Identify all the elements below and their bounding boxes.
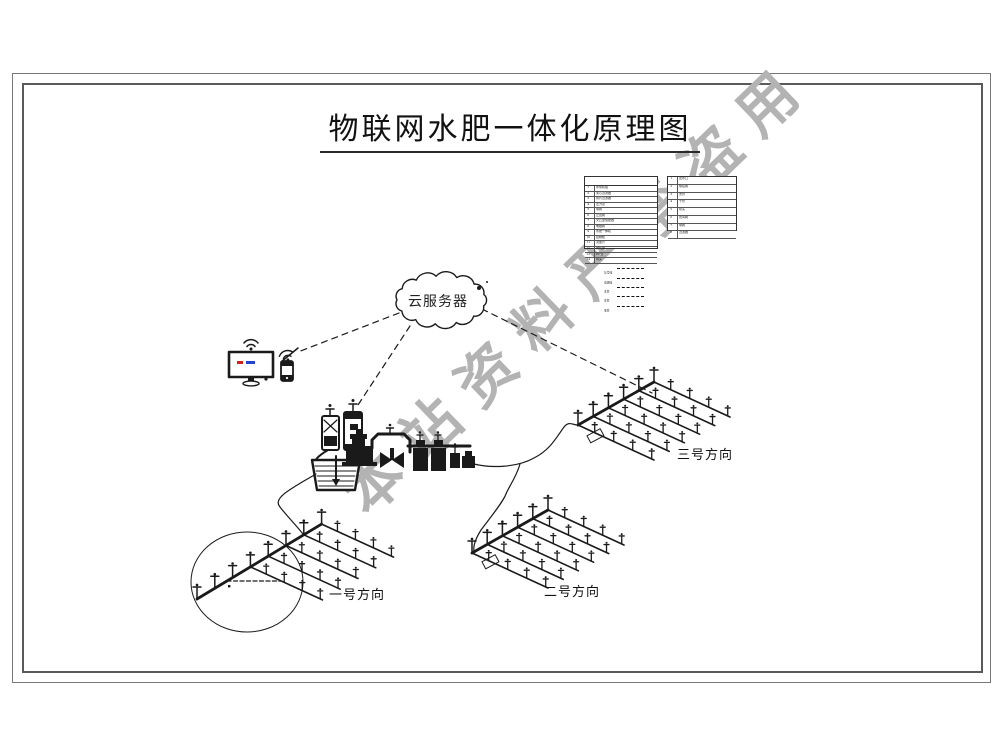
screen-red-dash [237,361,243,364]
wireless-link-lines [298,309,652,408]
field1-label: 一号方向 [329,584,385,603]
wifi-icon [244,340,258,351]
legend-row: 1出水口 [668,177,736,185]
legend-row: 2快接阀 [668,185,736,193]
title-underline [320,151,700,153]
legend-row: 8过滤器 [668,231,736,239]
field2-label: 二号方向 [544,581,600,600]
line-type-sample [617,268,644,269]
smartphone-icon [278,348,298,381]
monitor-icon [229,340,273,386]
link-cloud-to-devices [298,313,399,352]
line-type-row: 毛管 [604,302,644,311]
link-cloud-to-controller [356,326,410,408]
drawing-sheet: 物联网水肥一体化原理图 本站资料严禁盗用 [0,0,1000,750]
legend-row: 3支管 [668,193,736,201]
legend-header: 图例 [585,177,657,186]
fertigation-station [312,399,475,490]
field-tags [482,429,604,569]
legend-row: 7球阀 [668,224,736,232]
pipeline-to-field3 [474,424,580,467]
legend-table-side: 1出水口2快接阀3支管4干管5喷头6田间阀7球阀8过滤器 [667,176,737,231]
legend-row: 5喷头 [668,208,736,216]
drawing-title: 物联网水肥一体化原理图 [260,104,760,148]
legend-row: 6田间阀 [668,216,736,224]
line-type-sample [617,306,644,307]
screen-blue-dash [246,361,255,364]
legend-table-main: 图例 1水泵机组2离心过滤器3叠片过滤器4压力表5球阀6止回阀7文丘里施肥器8电… [584,176,658,249]
sprinkler-fields [193,367,730,600]
valve-icon [380,448,404,468]
line-type-sample [617,278,644,279]
field3-label: 三号方向 [677,444,733,463]
line-type-sample [617,296,644,297]
line-type-sample [617,287,644,288]
filter-station-icon [408,431,475,471]
link-cloud-to-field3 [482,309,652,393]
sprinkler-grid-field2 [468,495,624,588]
legend-line-types: 信号线电源线主管支管毛管 [604,264,644,311]
legend-row: 14喷头 [585,258,657,264]
legend-row: 4干管 [668,200,736,208]
cloud-server-label: 云服务器 [408,291,468,311]
pipeline-to-field1 [278,474,316,534]
fertilizer-tank-icon [322,404,339,450]
